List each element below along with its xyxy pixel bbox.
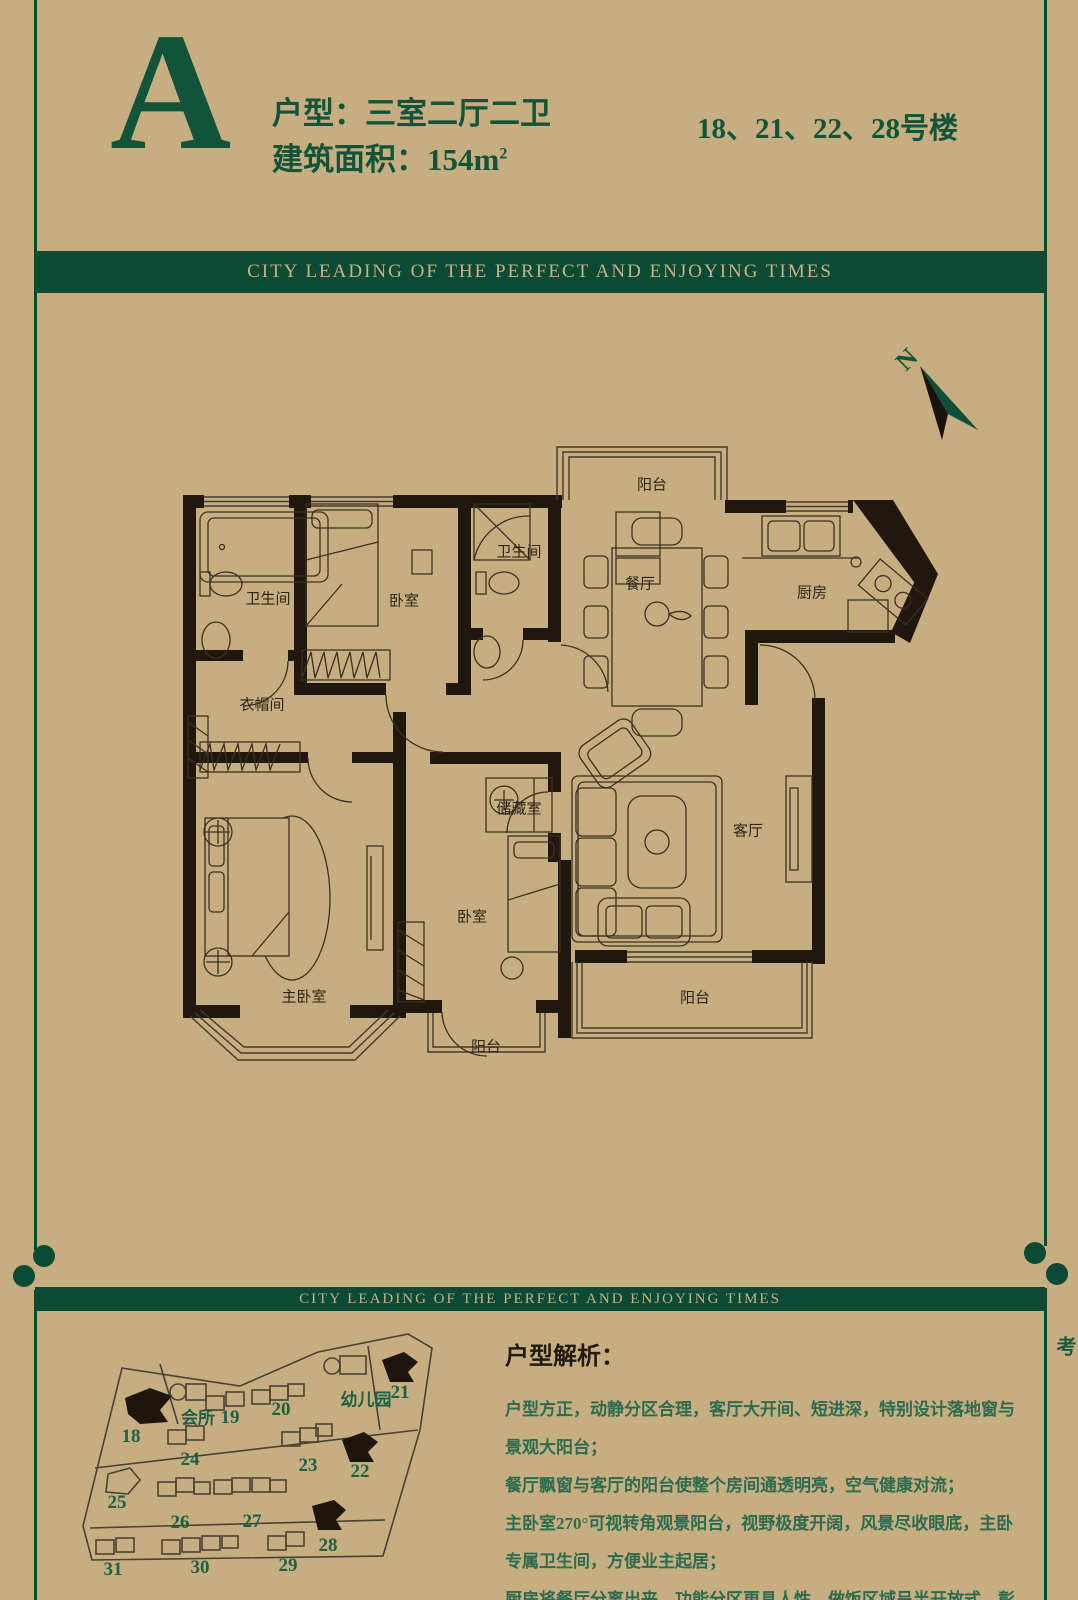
- sitemap-label-27: 27: [243, 1511, 262, 1533]
- analysis-line: 餐厅飘窗与客厅的阳台使整个房间通透明亮，空气健康对流；: [505, 1467, 1025, 1505]
- svg-text:N: N: [890, 342, 924, 376]
- floor-plan: [183, 447, 938, 1060]
- sitemap-label-25: 25: [108, 1492, 127, 1514]
- room-label-balcony-small: 阳台: [471, 1036, 501, 1057]
- room-label-living: 客厅: [733, 820, 763, 841]
- sitemap-label-clubhouse: 会所: [181, 1404, 215, 1429]
- analysis-line: 户型方正，动静分区合理，客厅大开间、短进深，特别设计落地窗与景观大阳台；: [505, 1391, 1025, 1467]
- room-label-kitchen: 厨房: [797, 582, 827, 603]
- highlighted-buildings: [125, 1352, 418, 1530]
- sitemap-label-24: 24: [181, 1449, 200, 1471]
- sitemap-label-29: 29: [279, 1555, 298, 1577]
- analysis-line: 主卧室270°可视转角观景阳台，视野极度开阔，风景尽收眼底，主卧专属卫生间，方便…: [505, 1505, 1025, 1581]
- room-label-master-bedroom: 主卧室: [281, 986, 326, 1007]
- sitemap-label-26: 26: [171, 1512, 190, 1534]
- sitemap-label-kindergarten: 幼儿园: [341, 1386, 392, 1411]
- analysis-line: 厨房将餐厅分离出来，功能分区更具人性，做饭区域呈半开放式，彰显时尚；: [505, 1581, 1025, 1600]
- room-label-bedroom-top: 卧室: [389, 590, 419, 611]
- room-label-balcony-top: 阳台: [637, 474, 667, 495]
- room-label-dining: 餐厅: [625, 573, 655, 594]
- sitemap-label-21: 21: [391, 1382, 410, 1404]
- room-label-cloakroom: 衣帽间: [239, 694, 284, 715]
- unit-analysis: 户型解析： 户型方正，动静分区合理，客厅大开间、短进深，特别设计落地窗与景观大阳…: [505, 1336, 1025, 1600]
- sitemap-label-18: 18: [122, 1426, 141, 1448]
- room-label-storage: 储藏室: [496, 798, 541, 819]
- room-label-bedroom-bottom: 卧室: [457, 906, 487, 927]
- sitemap-label-31: 31: [104, 1559, 123, 1581]
- sitemap-label-20: 20: [272, 1399, 291, 1421]
- room-label-balcony-bottom: 阳台: [680, 987, 710, 1008]
- sitemap-label-19: 19: [221, 1407, 240, 1429]
- poster-page: A 户型：三室二厅二卫 建筑面积：154m2 18、21、22、28号楼 CIT…: [0, 0, 1078, 1600]
- sitemap-label-28: 28: [319, 1535, 338, 1557]
- north-arrow-icon: N: [890, 342, 978, 440]
- sitemap-label-23: 23: [299, 1455, 318, 1477]
- analysis-title: 户型解析：: [505, 1336, 1025, 1371]
- side-note-vertical: 此户型只做参考: [1050, 1336, 1078, 1506]
- room-label-bath-right: 卫生间: [496, 541, 541, 562]
- sitemap-label-30: 30: [191, 1557, 210, 1579]
- room-label-bath-left: 卫生间: [245, 588, 290, 609]
- sitemap-label-22: 22: [351, 1461, 370, 1483]
